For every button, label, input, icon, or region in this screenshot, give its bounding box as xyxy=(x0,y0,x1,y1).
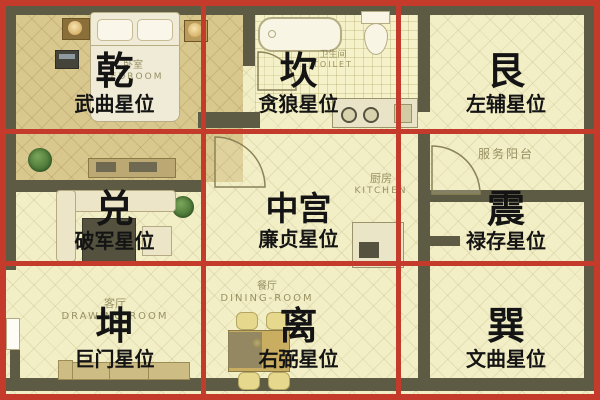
balcony-door xyxy=(6,318,20,350)
trigram-kun: 坤 xyxy=(95,307,133,347)
wall xyxy=(584,6,594,384)
tv-cabinet xyxy=(55,50,79,69)
room-label-service-balcony-cn: 服务阳台 xyxy=(458,148,554,162)
blanket-line xyxy=(91,45,179,46)
wall xyxy=(10,345,20,385)
room-label-kitchen-en: KITCHEN xyxy=(345,186,417,196)
wall xyxy=(418,130,430,380)
dining-chair xyxy=(268,372,290,390)
panel xyxy=(394,104,412,123)
knob-icon xyxy=(341,107,357,123)
bathtub xyxy=(258,17,342,52)
fengshui-floorplan: 卧室 BEDROOM 卫生间 TOILET 厨房 KITCHEN 服务阳台 客厅… xyxy=(0,0,600,400)
coffee-table xyxy=(82,218,136,262)
plant-icon xyxy=(28,148,52,172)
room-label-dining-room-cn: 餐厅 xyxy=(212,281,322,293)
room-label-drawing-room-cn: 客厅 xyxy=(55,298,175,311)
lamp-icon xyxy=(188,23,202,37)
cell-li: 离 右弼星位 xyxy=(201,261,396,394)
balcony-door-arc xyxy=(432,146,480,194)
washing-machine xyxy=(332,98,418,128)
knob-icon xyxy=(363,107,379,123)
trigram-gen: 艮 xyxy=(487,52,525,92)
wall xyxy=(243,14,255,66)
bed xyxy=(90,12,180,122)
dining-chair xyxy=(236,312,258,330)
sofa xyxy=(70,362,190,380)
cabinet-block xyxy=(129,162,157,172)
sofa xyxy=(56,190,76,262)
trigram-zhonggong: 中宫 xyxy=(266,192,332,227)
trigram-xun: 巽 xyxy=(487,307,525,347)
dining-chair xyxy=(238,372,260,390)
dining-chair xyxy=(266,312,288,330)
room-label-kitchen: 厨房 KITCHEN xyxy=(345,173,417,196)
pillow xyxy=(137,19,173,41)
star-lucun: 禄存星位 xyxy=(466,230,546,252)
pillow xyxy=(97,19,133,41)
kitchen-counter xyxy=(352,222,404,268)
room-label-dining-room: 餐厅 DINING-ROOM xyxy=(212,281,322,304)
star-lianzhen: 廉贞星位 xyxy=(259,228,339,250)
sink xyxy=(359,242,379,258)
room-label-service-balcony: 服务阳台 xyxy=(458,148,554,162)
room-label-dining-room-en: DINING-ROOM xyxy=(212,293,322,305)
table-decor-icon xyxy=(252,338,262,348)
wall xyxy=(198,112,260,128)
star-wenqu: 文曲星位 xyxy=(466,348,546,370)
room-label-kitchen-cn: 厨房 xyxy=(345,173,417,186)
room-label-drawing-room-en: DRAWING ROOM xyxy=(55,311,175,323)
cabinet-block xyxy=(96,162,116,172)
room-label-drawing-room: 客厅 DRAWING ROOM xyxy=(55,298,175,322)
wall xyxy=(418,14,430,112)
cabinet xyxy=(88,158,176,178)
lamp-icon xyxy=(68,21,82,35)
star-zuofu: 左辅星位 xyxy=(466,93,546,115)
wall xyxy=(428,190,584,202)
side-table xyxy=(142,226,172,256)
sofa-arm xyxy=(58,360,73,380)
wall xyxy=(430,236,460,246)
wall xyxy=(6,6,16,270)
